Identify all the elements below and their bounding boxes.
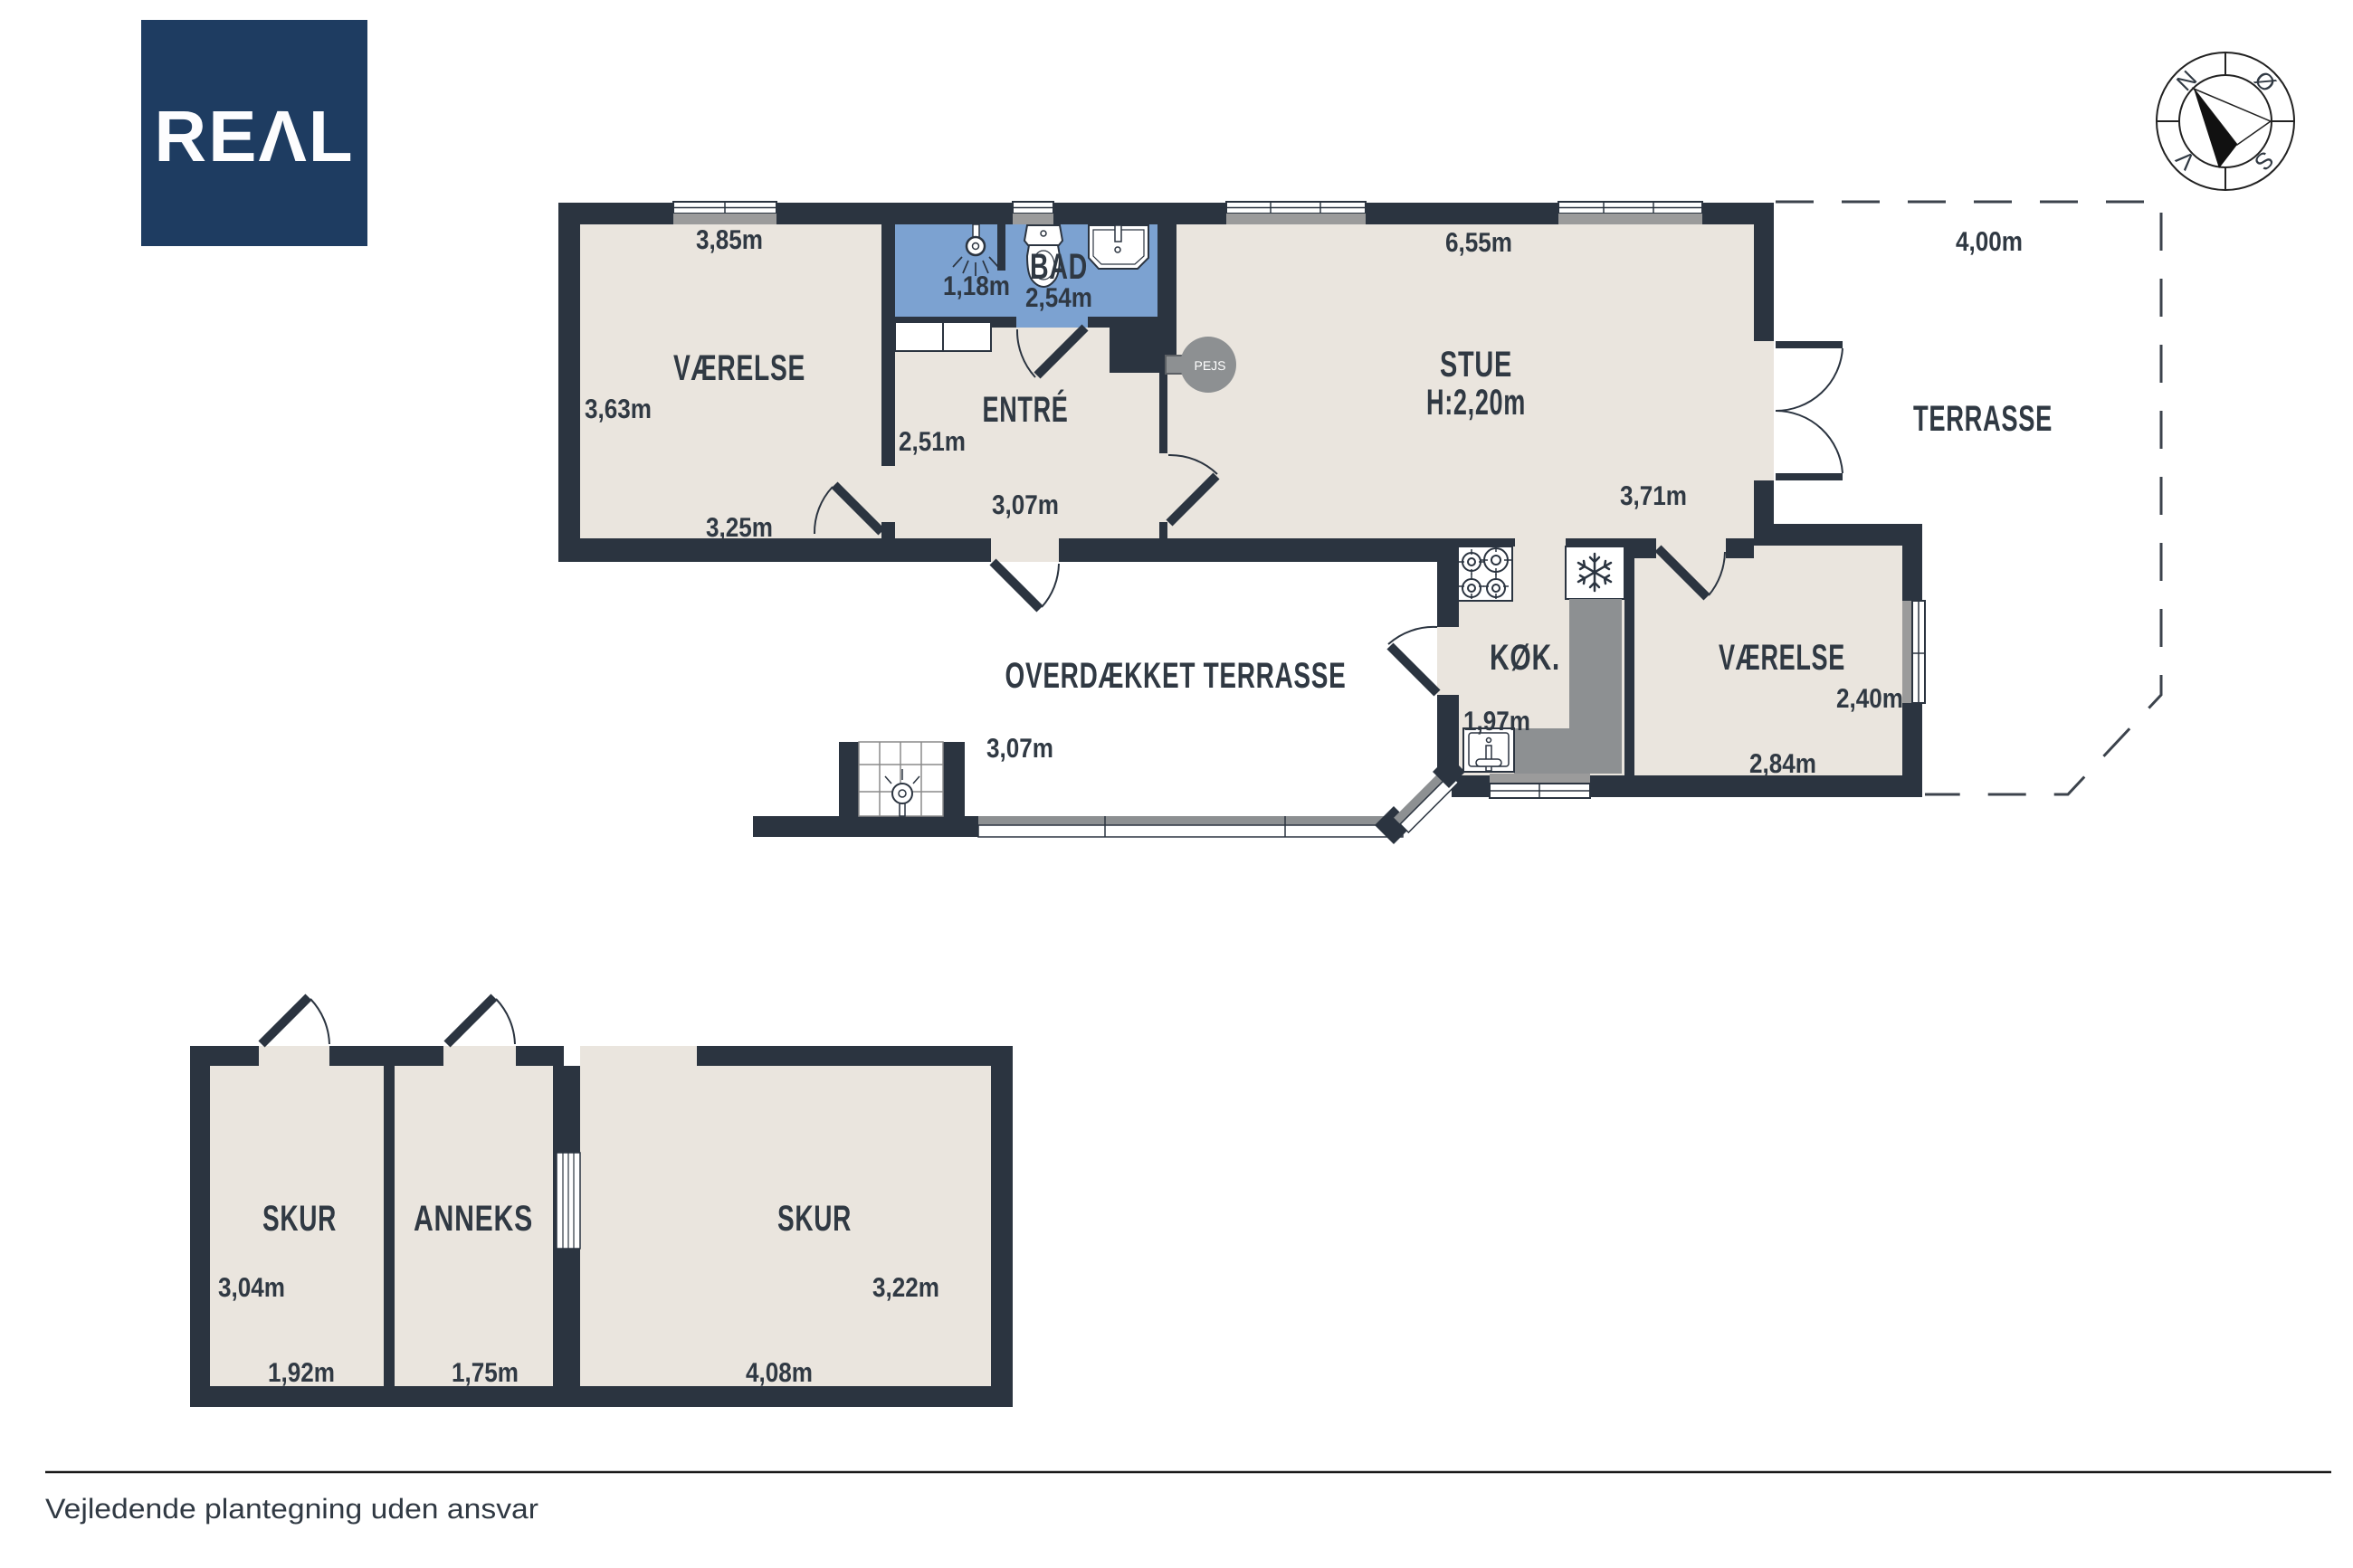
svg-text:3,04m: 3,04m	[218, 1273, 285, 1303]
svg-text:SKUR: SKUR	[262, 1199, 337, 1239]
svg-text:2,40m: 2,40m	[1836, 684, 1903, 714]
svg-text:2,54m: 2,54m	[1025, 283, 1092, 313]
svg-text:STUE: STUE	[1440, 345, 1512, 385]
svg-text:3,07m: 3,07m	[986, 734, 1053, 764]
svg-text:3,07m: 3,07m	[992, 490, 1059, 520]
svg-text:H:2,20m: H:2,20m	[1426, 383, 1526, 423]
svg-text:1,97m: 1,97m	[1463, 707, 1530, 736]
svg-text:KØK.: KØK.	[1490, 638, 1560, 678]
svg-text:1,92m: 1,92m	[268, 1358, 335, 1388]
svg-text:2,51m: 2,51m	[899, 427, 966, 457]
svg-text:TERRASSE: TERRASSE	[1913, 399, 2053, 439]
svg-text:3,71m: 3,71m	[1620, 481, 1687, 511]
svg-text:3,85m: 3,85m	[696, 225, 763, 255]
svg-text:VÆRELSE: VÆRELSE	[673, 348, 805, 388]
svg-text:VÆRELSE: VÆRELSE	[1719, 638, 1845, 678]
svg-text:1,75m: 1,75m	[452, 1358, 519, 1388]
svg-text:BAD: BAD	[1030, 247, 1088, 287]
svg-text:ANNEKS: ANNEKS	[414, 1199, 533, 1239]
svg-text:3,22m: 3,22m	[872, 1273, 939, 1303]
svg-text:6,55m: 6,55m	[1445, 228, 1512, 258]
svg-text:3,25m: 3,25m	[706, 513, 773, 543]
svg-text:SKUR: SKUR	[777, 1199, 852, 1239]
svg-text:3,63m: 3,63m	[585, 394, 652, 424]
svg-text:4,08m: 4,08m	[746, 1358, 813, 1388]
svg-text:ENTRÉ: ENTRÉ	[982, 389, 1068, 430]
svg-text:PEJS: PEJS	[1194, 358, 1225, 373]
svg-text:2,84m: 2,84m	[1749, 749, 1816, 779]
svg-text:OVERDÆKKET TERRASSE: OVERDÆKKET TERRASSE	[1005, 656, 1346, 696]
svg-text:1,18m: 1,18m	[943, 271, 1010, 301]
svg-text:REΛL: REΛL	[154, 96, 354, 176]
svg-text:4,00m: 4,00m	[1956, 227, 2023, 257]
svg-text:Vejledende plantegning uden an: Vejledende plantegning uden ansvar	[45, 1493, 538, 1525]
